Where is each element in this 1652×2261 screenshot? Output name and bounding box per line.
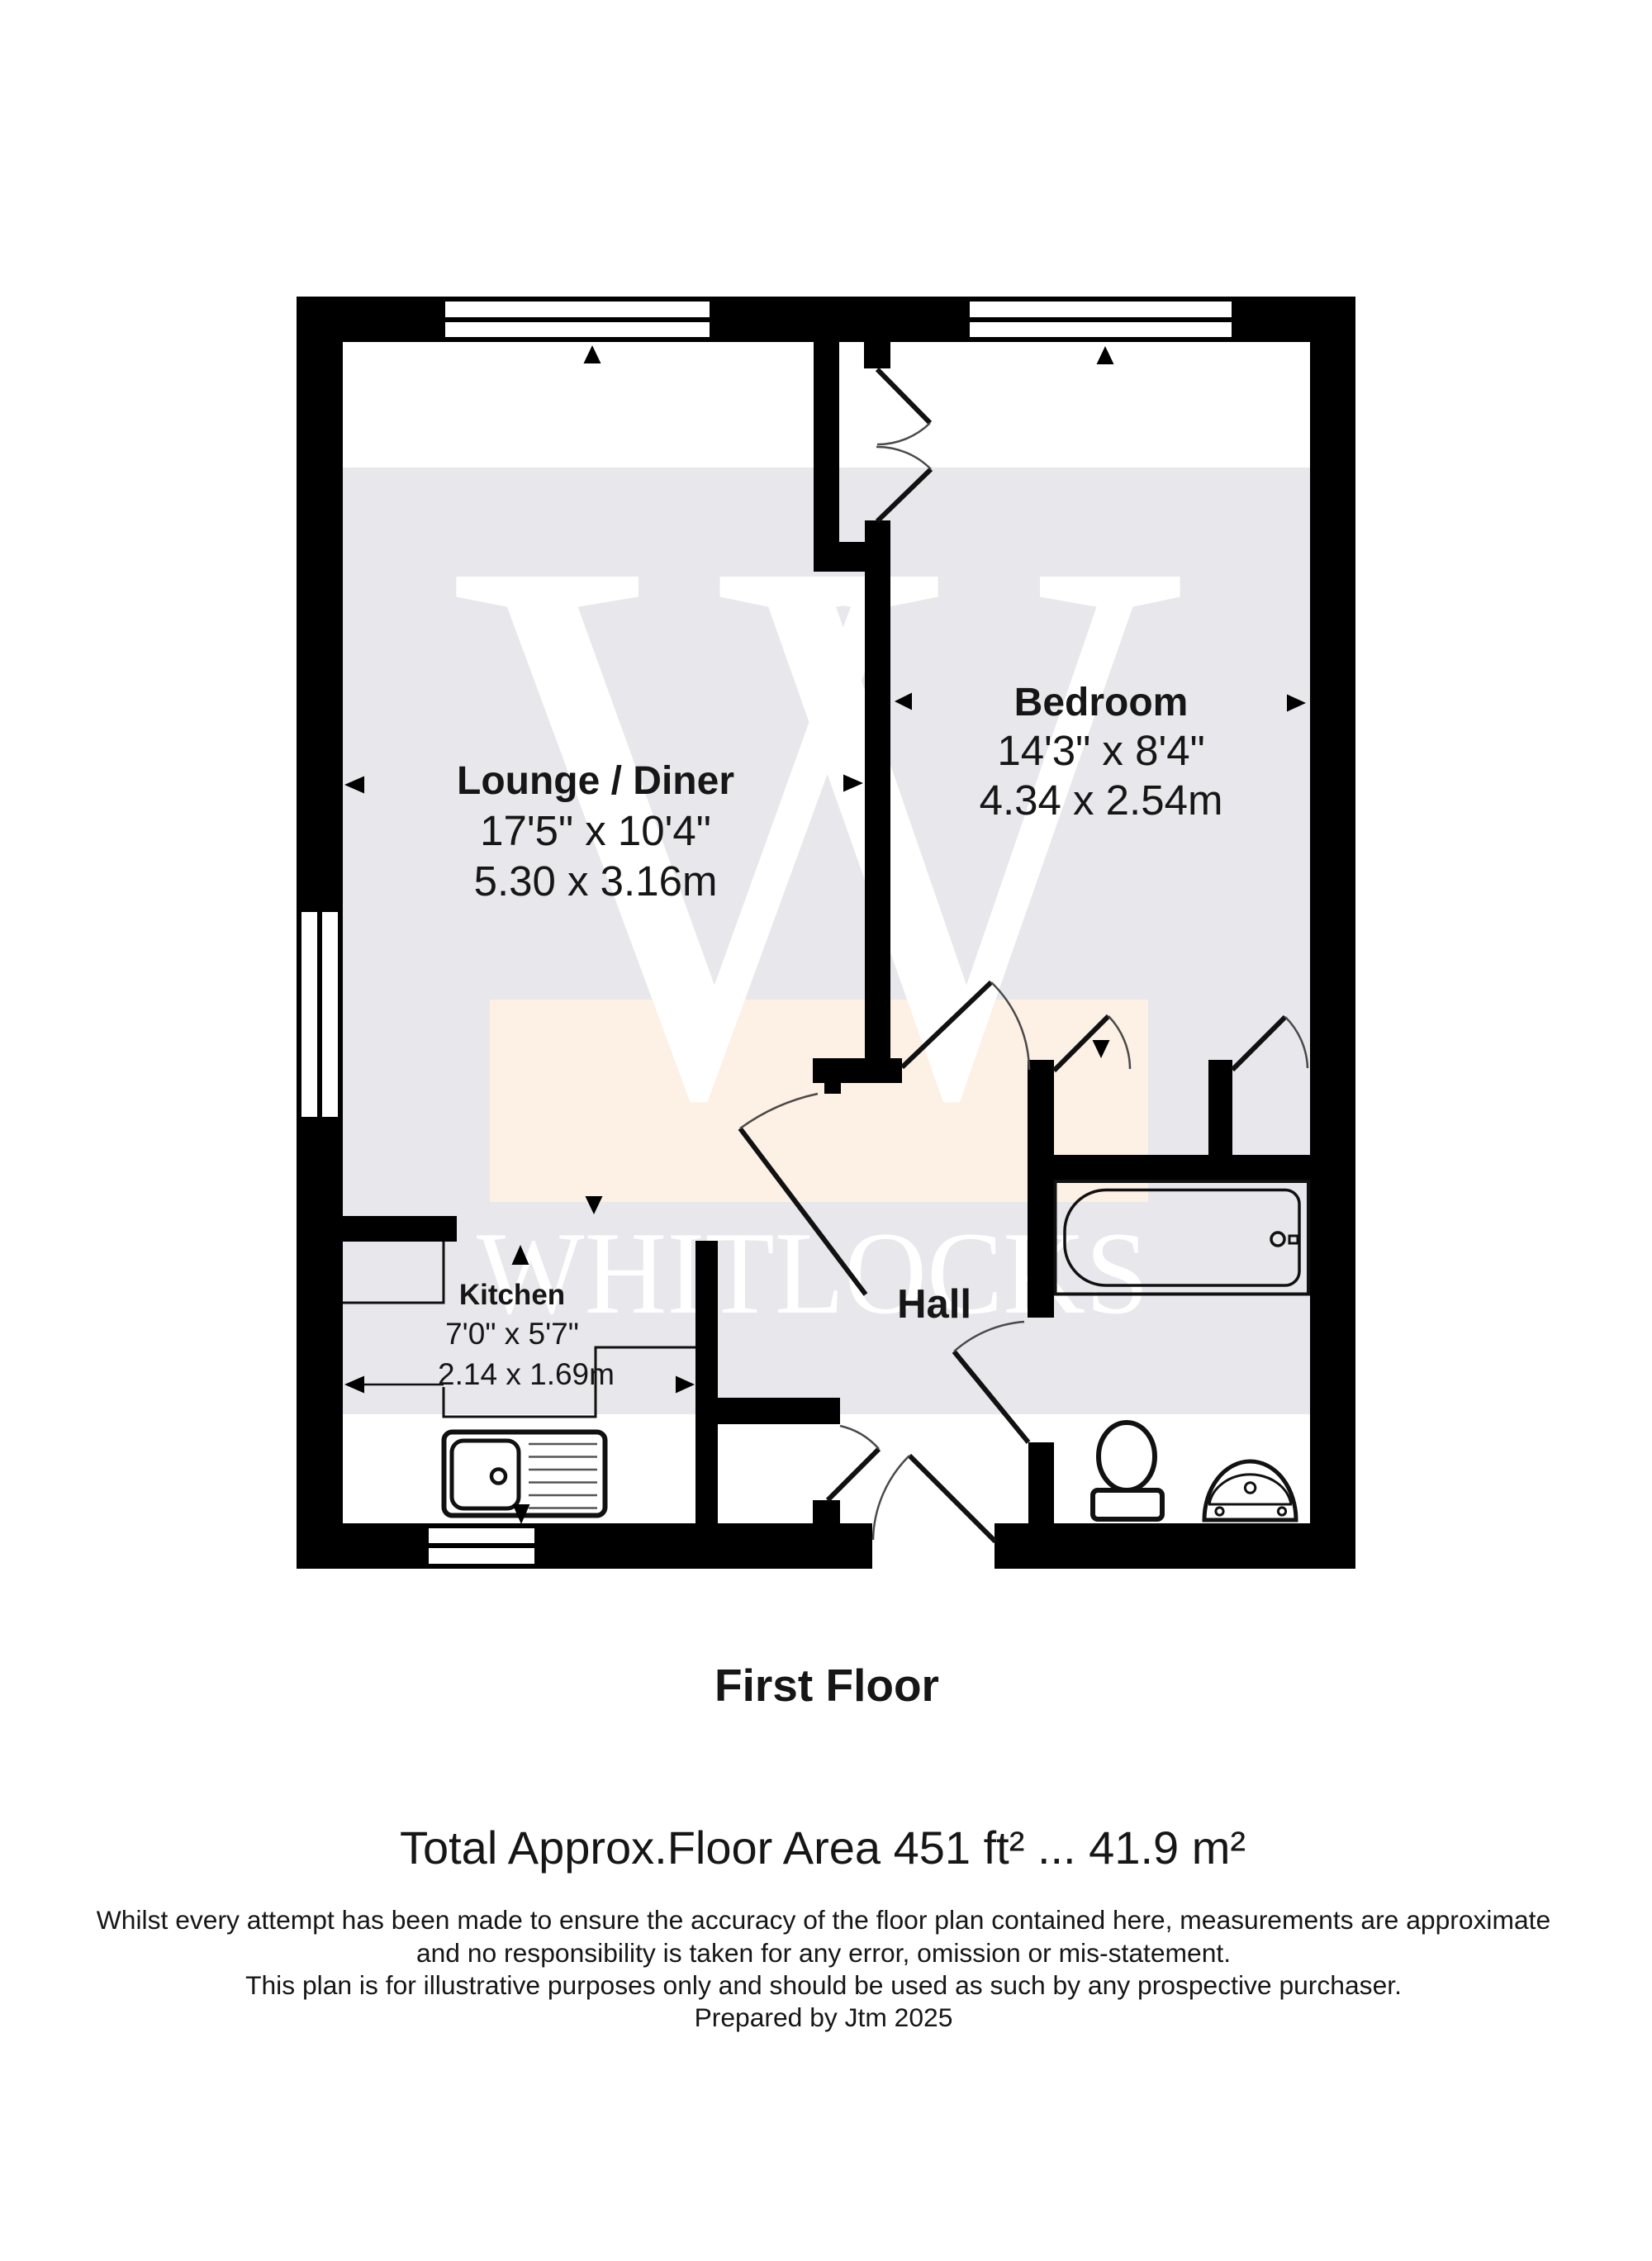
svg-text:This plan is for illustrative: This plan is for illustrative purposes o… xyxy=(245,1970,1402,2000)
svg-text:Total Approx.Floor Area 451 ft: Total Approx.Floor Area 451 ft² ... 41.9… xyxy=(400,1822,1246,1874)
svg-text:and no responsibility is taken: and no responsibility is taken for any e… xyxy=(416,1938,1231,1968)
svg-text:First Floor: First Floor xyxy=(714,1660,939,1711)
svg-text:14'3" x 8'4": 14'3" x 8'4" xyxy=(997,727,1204,774)
svg-text:Bedroom: Bedroom xyxy=(1014,681,1189,724)
svg-text:17'5" x 10'4": 17'5" x 10'4" xyxy=(480,807,711,854)
svg-text:2.14 x 1.69m: 2.14 x 1.69m xyxy=(438,1357,615,1391)
svg-text:Prepared by Jtm 2025: Prepared by Jtm 2025 xyxy=(695,2002,953,2032)
svg-text:5.30 x 3.16m: 5.30 x 3.16m xyxy=(474,857,718,905)
svg-text:4.34 x 2.54m: 4.34 x 2.54m xyxy=(980,777,1223,824)
svg-text:V: V xyxy=(713,392,1188,1261)
svg-text:Whilst every attempt has been: Whilst every attempt has been made to en… xyxy=(97,1905,1550,1935)
svg-text:Hall: Hall xyxy=(897,1282,971,1327)
svg-text:Lounge / Diner: Lounge / Diner xyxy=(457,759,734,803)
svg-text:Kitchen: Kitchen xyxy=(459,1279,565,1311)
svg-text:7'0" x 5'7": 7'0" x 5'7" xyxy=(445,1317,579,1351)
